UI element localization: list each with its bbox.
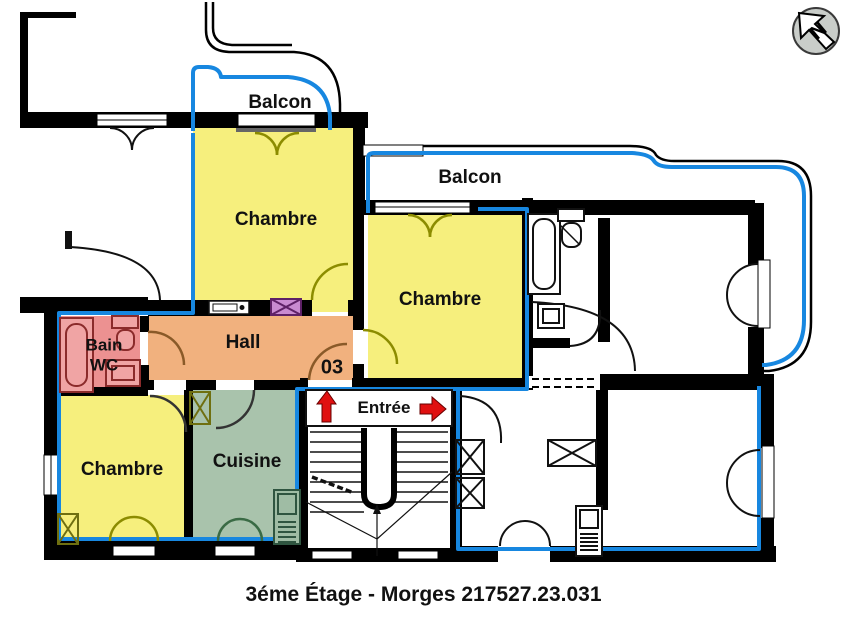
wall-segment — [184, 390, 193, 542]
french-door-leaf — [727, 450, 760, 483]
wall-segment — [596, 390, 608, 510]
floor-plan: Balcon Balcon Chambre Chambre Chambre Ha… — [0, 0, 847, 624]
wall-segment — [20, 297, 148, 313]
neighbour-balcony-door-leaf — [110, 128, 132, 150]
balcony-parapet-inner — [213, 2, 292, 45]
wall-segment — [353, 124, 365, 215]
window-sill — [236, 128, 316, 132]
neighbour-window-leaf — [500, 521, 525, 546]
bedroom-mid-label: Chambre — [399, 289, 481, 311]
window — [312, 551, 352, 559]
french-door-leaf — [727, 483, 760, 516]
stair-well — [364, 428, 394, 507]
floor-plan-drawing — [0, 0, 847, 624]
neighbour-window-leaf — [525, 521, 550, 546]
wall-segment — [20, 12, 76, 18]
dashed-opening — [528, 376, 600, 388]
wall-segment — [140, 365, 149, 390]
window — [758, 260, 770, 328]
bathroom-label: Bain WC — [86, 335, 123, 374]
south-wall-left — [44, 540, 304, 560]
unit-number-label: 03 — [321, 357, 343, 380]
bathroom-label-line1: Bain — [86, 335, 123, 355]
neighbour-left-wall — [20, 12, 76, 112]
neighbour-shafts — [456, 440, 602, 556]
small-sink-basin — [543, 309, 559, 323]
kitchen-label: Cuisine — [213, 451, 282, 473]
window — [398, 551, 438, 559]
bedroom-bottom-label: Chambre — [81, 459, 163, 481]
french-door-leaf — [727, 264, 758, 295]
west-wall — [44, 306, 58, 546]
window — [215, 546, 255, 556]
entrance-door-opening — [308, 380, 352, 388]
wall-segment — [148, 380, 154, 390]
wall-segment — [140, 316, 149, 332]
kitchen-appliance — [274, 490, 300, 544]
entrance-label: Entrée — [358, 398, 411, 418]
bedroom-top-label: Chambre — [235, 209, 317, 231]
plan-caption: 3éme Étage - Morges 217527.23.031 — [0, 583, 847, 607]
staircase — [306, 428, 452, 556]
neighbour-bath-fixtures — [528, 209, 584, 328]
sink-shelf — [558, 209, 584, 221]
hall-label: Hall — [226, 332, 261, 354]
neighbour-door — [70, 247, 160, 300]
window — [238, 114, 315, 126]
wall-segment — [186, 380, 216, 390]
south-east-outline — [458, 386, 759, 549]
neighbour-balcony-door-leaf — [132, 128, 154, 150]
door-stub — [66, 232, 71, 248]
appliance-dot — [240, 305, 245, 310]
balcony-mid-label: Balcon — [438, 167, 501, 189]
french-door-leaf — [727, 295, 758, 326]
window — [113, 546, 155, 556]
wall-segment — [20, 12, 28, 112]
wall-segment — [348, 300, 357, 316]
east-wall-top — [748, 203, 764, 265]
neighbour-room-door — [460, 396, 501, 443]
bathtub-inner — [533, 219, 555, 289]
window — [762, 446, 774, 518]
bathtub-inner — [66, 324, 87, 386]
wall-segment — [522, 338, 570, 348]
toilet-tank — [112, 316, 138, 328]
balcony-top-label: Balcon — [248, 92, 311, 114]
bathroom-label-line2: WC — [86, 355, 123, 375]
middle-wall — [600, 374, 774, 390]
